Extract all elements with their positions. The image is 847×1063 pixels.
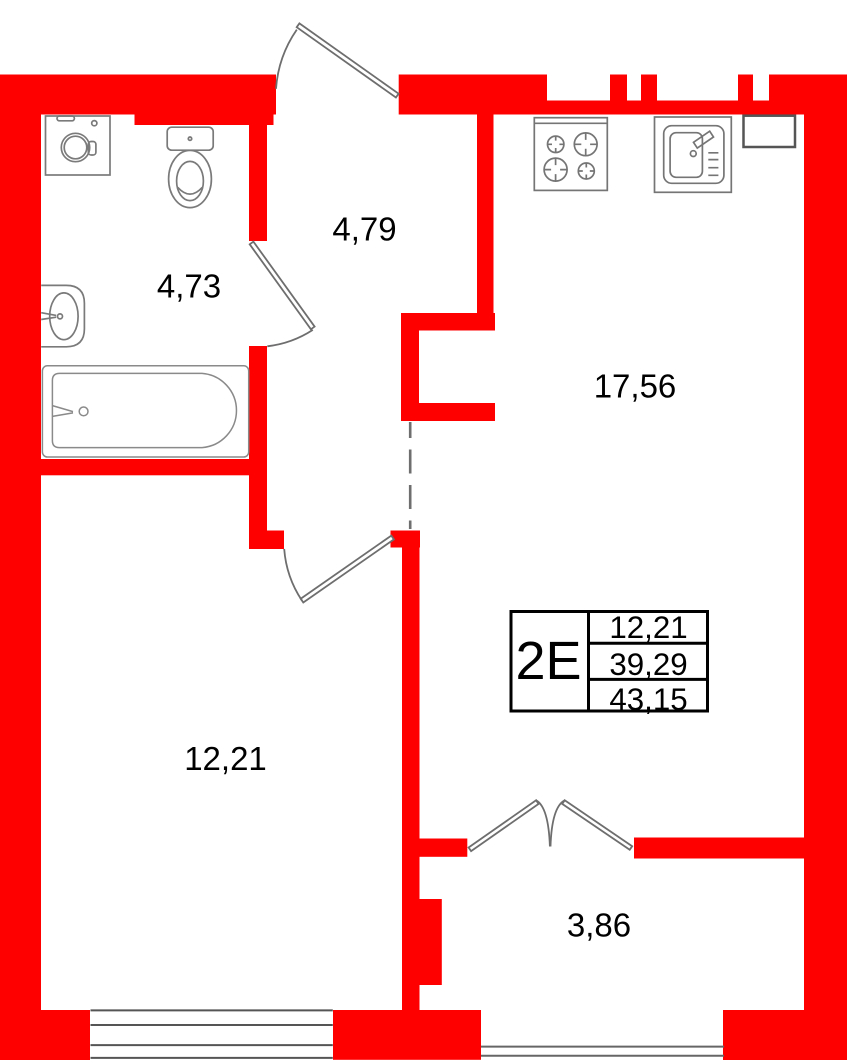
svg-text:12,21: 12,21 [609, 610, 687, 645]
svg-text:17,56: 17,56 [594, 368, 677, 405]
svg-text:4,73: 4,73 [157, 268, 221, 305]
svg-text:43,15: 43,15 [609, 682, 687, 717]
svg-text:12,21: 12,21 [184, 740, 267, 777]
svg-text:4,79: 4,79 [332, 211, 396, 248]
svg-text:2E: 2E [515, 631, 581, 691]
svg-text:3,86: 3,86 [567, 907, 631, 944]
svg-text:39,29: 39,29 [609, 647, 687, 682]
